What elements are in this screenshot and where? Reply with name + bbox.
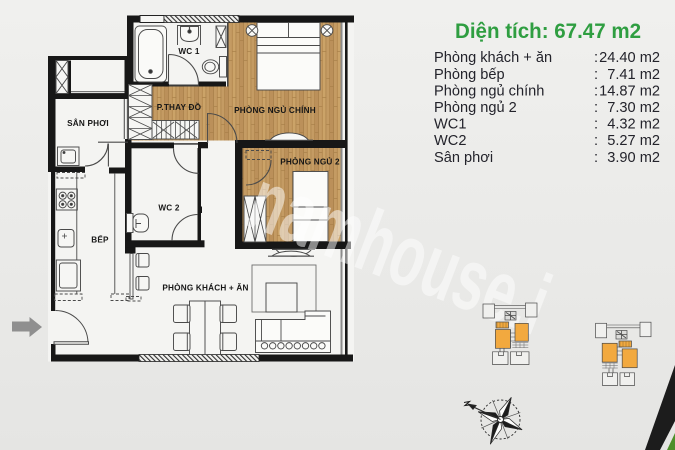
svg-text::: : bbox=[594, 84, 598, 100]
svg-text:3.90 m2: 3.90 m2 bbox=[607, 150, 660, 166]
svg-text:P.THAY ĐỒ: P.THAY ĐỒ bbox=[157, 101, 202, 112]
svg-text::: : bbox=[594, 117, 598, 133]
svg-text::: : bbox=[594, 150, 598, 166]
svg-text:WC 2: WC 2 bbox=[158, 204, 180, 213]
svg-text:WC1: WC1 bbox=[434, 117, 466, 133]
svg-text:SÂN PHƠI: SÂN PHƠI bbox=[67, 117, 109, 128]
svg-text::: : bbox=[594, 67, 598, 83]
svg-text::: : bbox=[594, 50, 598, 66]
svg-text:Diện tích: 67.47 m2: Diện tích: 67.47 m2 bbox=[455, 19, 641, 43]
svg-text:7.30 m2: 7.30 m2 bbox=[607, 100, 660, 116]
svg-text:Sân phơi: Sân phơi bbox=[434, 150, 493, 166]
svg-text::: : bbox=[594, 133, 598, 149]
svg-text:7.41 m2: 7.41 m2 bbox=[607, 67, 660, 83]
svg-text:Phòng khách + ăn: Phòng khách + ăn bbox=[434, 50, 552, 66]
svg-text:Phòng ngủ chính: Phòng ngủ chính bbox=[434, 84, 544, 100]
svg-text:14.87 m2: 14.87 m2 bbox=[599, 84, 660, 100]
svg-text:PHÒNG KHÁCH + ĂN: PHÒNG KHÁCH + ĂN bbox=[162, 282, 248, 293]
svg-text::: : bbox=[594, 100, 598, 116]
svg-text:Phòng ngủ 2: Phòng ngủ 2 bbox=[434, 100, 517, 116]
svg-text:Phòng bếp: Phòng bếp bbox=[434, 67, 505, 83]
svg-text:5.27 m2: 5.27 m2 bbox=[607, 133, 660, 149]
svg-text:WC 1: WC 1 bbox=[178, 47, 200, 56]
svg-text:WC2: WC2 bbox=[434, 133, 466, 149]
svg-text:4.32 m2: 4.32 m2 bbox=[607, 117, 660, 133]
svg-text:24.40 m2: 24.40 m2 bbox=[599, 50, 660, 66]
svg-text:BẾP: BẾP bbox=[91, 235, 109, 245]
svg-text:PHÒNG NGỦ CHÍNH: PHÒNG NGỦ CHÍNH bbox=[234, 104, 316, 115]
